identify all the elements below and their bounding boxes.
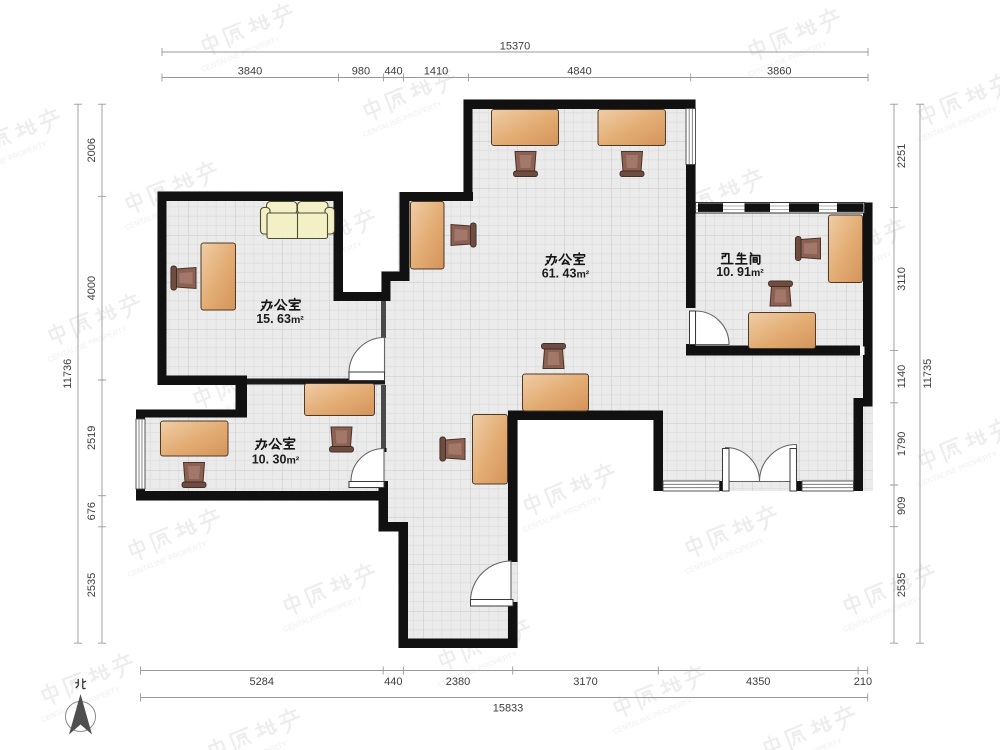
svg-text:2535: 2535 [86,573,98,597]
svg-text:1410: 1410 [424,66,448,78]
svg-text:61. 43m²: 61. 43m² [542,267,590,281]
svg-text:210: 210 [854,676,872,688]
svg-text:10. 91m²: 10. 91m² [716,265,764,279]
svg-text:440: 440 [384,66,402,78]
svg-text:15833: 15833 [493,703,524,715]
svg-text:15370: 15370 [500,41,531,53]
svg-text:1140: 1140 [896,365,908,389]
svg-text:2535: 2535 [896,573,908,597]
svg-text:3840: 3840 [238,66,262,78]
svg-text:10. 30m²: 10. 30m² [252,453,300,467]
svg-text:4350: 4350 [746,676,770,688]
svg-text:440: 440 [384,676,402,688]
svg-text:3860: 3860 [767,66,791,78]
svg-text:2251: 2251 [896,144,908,168]
svg-text:909: 909 [896,497,908,515]
svg-text:2006: 2006 [86,138,98,162]
svg-text:2380: 2380 [446,676,470,688]
svg-text:2519: 2519 [86,426,98,450]
svg-text:3170: 3170 [573,676,597,688]
svg-text:11735: 11735 [922,359,934,389]
svg-text:4000: 4000 [86,276,98,300]
svg-text:4840: 4840 [567,66,591,78]
svg-text:3110: 3110 [896,267,908,291]
svg-text:1790: 1790 [896,432,908,456]
svg-text:11736: 11736 [62,359,74,389]
svg-text:15. 63m²: 15. 63m² [256,312,304,326]
svg-text:676: 676 [86,502,98,520]
svg-text:980: 980 [352,66,370,78]
svg-text:5284: 5284 [250,676,274,688]
